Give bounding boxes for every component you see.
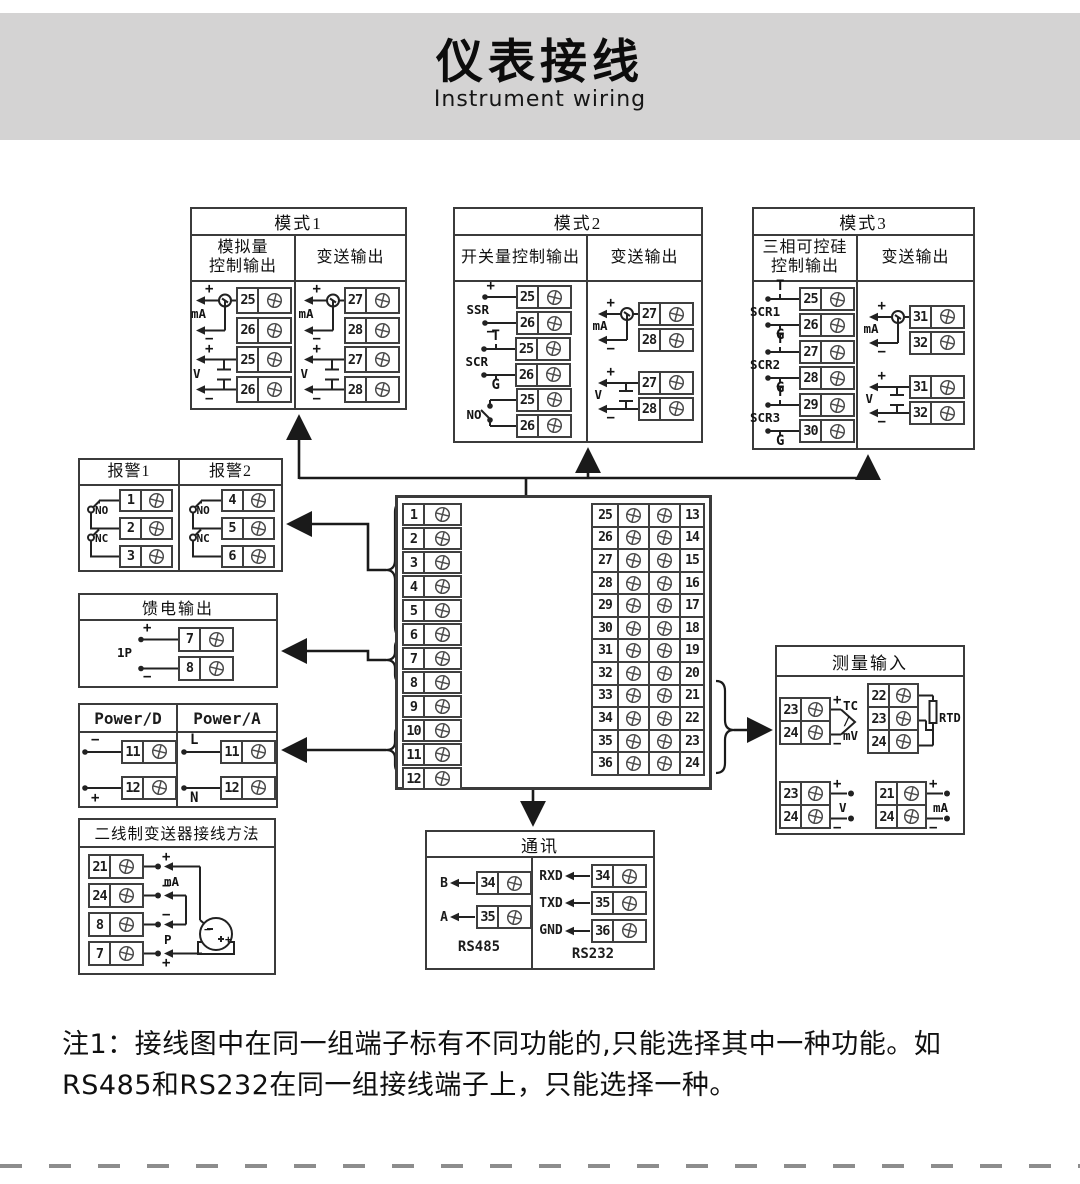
terminal-strip: 1112 — [220, 740, 276, 800]
nc-label: NC — [197, 532, 210, 545]
screw-terminal-icon — [654, 709, 675, 728]
dashed-separator — [0, 1164, 1080, 1168]
terminal-strip: 36 — [591, 919, 647, 943]
polarity-label: + — [313, 281, 321, 297]
central-terminal-block: 123456789101112 251326142715281629173018… — [395, 495, 712, 790]
terminal-screw — [425, 505, 460, 524]
terminal-number: 36 — [593, 753, 617, 774]
alarm-columns: 报警1 NONC123 报警2 NONC456 — [80, 460, 281, 570]
screw-terminal-icon — [937, 378, 958, 397]
terminal-screw — [425, 553, 460, 572]
terminal-number: 26 — [801, 315, 822, 335]
screw-terminal-icon — [654, 641, 675, 660]
terminal-8: 8 — [402, 671, 462, 694]
alarm2-column: 报警2 NONC456 — [180, 460, 281, 570]
terminal-row-27-15: 2715 — [591, 548, 705, 573]
terminal-screw — [822, 421, 853, 441]
terminal-number: 27 — [640, 304, 661, 324]
screw-terminal-icon — [149, 778, 170, 797]
signal-label: 1P — [117, 645, 132, 660]
gate-g-label: G — [776, 433, 784, 449]
terminal-screw — [142, 547, 171, 566]
terminal-strip: 1112 — [121, 740, 177, 800]
terminal-2: 2 — [119, 517, 173, 540]
terminal-25: 25 — [799, 287, 855, 311]
terminal-screw — [648, 528, 679, 549]
screw-terminal-icon — [827, 316, 848, 335]
terminal-strip: 3132 — [909, 375, 965, 425]
comm-columns: B34A35RS485 RXD34TXD35GND36RS232 — [427, 858, 653, 968]
terminal-screw — [243, 742, 274, 762]
terminal-number: 28 — [593, 573, 617, 594]
terminal-number: 19 — [679, 640, 703, 661]
terminal-30: 30 — [799, 419, 855, 443]
terminal-number: 27 — [801, 342, 822, 362]
terminal-screw — [648, 686, 679, 707]
mode3-col2-body: +−mA3132 +−V3132 — [858, 282, 973, 448]
terminal-number: 32 — [593, 663, 617, 684]
screw-terminal-icon — [544, 288, 565, 307]
screw-terminal-icon — [372, 291, 393, 310]
terminal-screw — [617, 618, 648, 639]
terminal-number: 24 — [781, 722, 802, 743]
terminal-strip: 2728 — [344, 346, 400, 403]
screw-terminal-icon — [623, 619, 644, 638]
signal-label: V — [839, 800, 847, 815]
screw-terminal-icon — [666, 305, 687, 324]
terminal-row-31-19: 3119 — [591, 638, 705, 663]
terminal-screw — [648, 663, 679, 684]
terminal-screw — [614, 866, 645, 886]
terminal-number: 34 — [593, 708, 617, 729]
terminal-number: 14 — [679, 528, 703, 549]
screw-terminal-icon — [623, 754, 644, 773]
V-wiring-glyph: +−V — [867, 375, 909, 425]
mode2-transmit-column: 变送输出 +−mA2728 +−V2728 — [588, 236, 701, 441]
terminal-3: 3 — [119, 545, 173, 568]
terminal-screw — [425, 721, 460, 740]
screw-terminal-icon — [827, 422, 848, 441]
screw-terminal-icon — [623, 686, 644, 705]
terminal-strip: 2728 — [799, 340, 855, 390]
terminal-screw — [367, 319, 398, 342]
polarity-label: + — [91, 790, 99, 806]
terminal-number: 32 — [911, 403, 932, 423]
screw-terminal-icon — [654, 551, 675, 570]
terminal-36: 36 — [591, 919, 647, 943]
mA-wiring-glyph: +−mA — [867, 305, 909, 355]
measure-v-group: 2324 + − V — [779, 781, 831, 829]
terminal-strip: 3132 — [909, 305, 965, 355]
terminal-screw — [425, 601, 460, 620]
screw-terminal-icon — [623, 506, 644, 525]
terminal-2: 2 — [402, 527, 462, 550]
signal-label: V — [193, 366, 201, 381]
polarity-label: + — [143, 620, 151, 636]
terminal-number: 24 — [781, 806, 802, 827]
screw-terminal-icon — [893, 732, 914, 751]
terminal-screw — [201, 629, 232, 650]
terminal-screw — [142, 491, 171, 510]
measure-tc-group: 2324 + − TC / mV — [779, 697, 831, 745]
screw-terminal-icon — [623, 574, 644, 593]
screw-terminal-icon — [654, 619, 675, 638]
terminal-number: 25 — [238, 348, 259, 371]
terminal-screw — [890, 731, 917, 752]
terminal-screw — [648, 618, 679, 639]
terminal-11: 11 — [121, 740, 177, 764]
rtd-label: RTD — [939, 711, 961, 726]
terminal-screw — [259, 289, 290, 312]
screw-terminal-icon — [654, 732, 675, 751]
mA-wiring-glyph: +−mA — [302, 287, 344, 344]
terminal-strip: 456 — [221, 489, 275, 568]
comm-row-TXD: TXD35 — [539, 891, 646, 915]
terminal-screw — [932, 333, 963, 353]
terminal-screw — [614, 921, 645, 941]
screw-terminal-icon — [827, 343, 848, 362]
terminal-number: 7 — [180, 629, 201, 650]
terminal-strip: 2526 — [516, 285, 572, 335]
screw-terminal-icon — [248, 547, 269, 566]
polarity-label: − — [878, 344, 886, 360]
terminal-7: 7 — [402, 647, 462, 670]
terminal-number: 28 — [346, 319, 367, 342]
screw-terminal-icon — [654, 686, 675, 705]
terminal-group: NO2526 — [470, 388, 572, 438]
no-label: NO — [95, 504, 108, 517]
terminal-strip: 2526 — [236, 287, 292, 344]
screw-terminal-icon — [544, 416, 565, 435]
screw-terminal-icon — [619, 921, 640, 940]
terminal-screw — [617, 550, 648, 571]
terminal-number: 21 — [877, 783, 898, 804]
polarity-label: − — [833, 736, 841, 752]
screw-terminal-icon — [543, 365, 564, 384]
screw-terminal-icon — [805, 807, 826, 826]
terminal-number: 35 — [593, 893, 614, 913]
terminal-row-36-24: 3624 — [591, 751, 705, 776]
screw-terminal-icon — [654, 528, 675, 547]
polarity-label: + — [607, 295, 615, 311]
terminal-26: 26 — [516, 414, 572, 438]
terminal-number: 25 — [518, 287, 539, 307]
scr-wiring-glyph: TGSCR2 — [755, 340, 799, 390]
page-header: 仪表接线 Instrument wiring — [0, 13, 1080, 140]
signal-label: RXD — [539, 869, 562, 884]
no-wiring-glyph: NO — [470, 388, 516, 438]
terminal-screw — [890, 708, 917, 729]
terminal-screw — [425, 649, 460, 668]
terminal-6: 6 — [402, 623, 462, 646]
terminal-11: 11 — [402, 743, 462, 766]
terminal-number: 23 — [679, 731, 703, 752]
V-wiring-glyph: +−V — [302, 346, 344, 403]
power-wiring-glyph: LN — [178, 740, 220, 800]
screw-terminal-icon — [623, 732, 644, 751]
terminal-strip: 2728 — [638, 302, 694, 352]
terminal-23: 23 — [779, 697, 831, 722]
terminal-number: 29 — [801, 395, 822, 415]
measure-rtd-group: 222324 RTD — [867, 683, 919, 754]
transmitter-minus: − — [204, 922, 211, 937]
polarity-label: + — [878, 368, 886, 384]
terminal-row-32-20: 3220 — [591, 661, 705, 686]
screw-terminal-icon — [432, 745, 453, 764]
terminal-number: 13 — [679, 505, 703, 526]
screw-terminal-icon — [544, 390, 565, 409]
signal-label: V — [301, 366, 309, 381]
terminal-screw — [617, 708, 648, 729]
terminal-strip: 123 — [119, 489, 173, 568]
mode2-columns: 开关量控制输出 +−SSR2526 TGSCR2526 NO2526 变送输出 … — [455, 236, 701, 441]
signal-label: mA — [864, 321, 879, 336]
terminals-25-36-13-24: 2513261427152816291730183119322033213422… — [591, 503, 705, 776]
terminal-screw — [425, 529, 460, 548]
terminal-4: 4 — [402, 575, 462, 598]
screw-terminal-icon — [248, 742, 269, 761]
screw-terminal-icon — [623, 551, 644, 570]
terminal-number: 12 — [404, 769, 425, 788]
terminal-number: 8 — [180, 658, 201, 679]
terminal-number: 26 — [238, 378, 259, 401]
terminal-number: 17 — [679, 595, 703, 616]
polarity-label: + — [607, 364, 615, 380]
comm-box: 通讯 B34A35RS485 RXD34TXD35GND36RS232 — [425, 830, 655, 970]
terminal-31: 31 — [909, 375, 965, 399]
terminal-28: 28 — [638, 328, 694, 352]
terminal-screw — [648, 708, 679, 729]
comm-standard-label: RS232 — [572, 946, 614, 962]
screw-terminal-icon — [805, 723, 826, 742]
feed-wiring-glyph: +−1P — [122, 627, 178, 681]
terminal-screw — [898, 783, 925, 804]
terminal-number: 29 — [593, 595, 617, 616]
terminal-screw — [648, 640, 679, 661]
polarity-label: + — [313, 341, 321, 357]
terminal-26: 26 — [515, 363, 571, 387]
terminal-screw — [648, 505, 679, 526]
rtd-strip: 222324 — [867, 683, 919, 754]
screw-terminal-icon — [623, 709, 644, 728]
terminal-32: 32 — [909, 331, 965, 355]
wiring-diagram: 模式1 模拟量 控制输出 +−mA2526 +−V2526 变送输出 +−mA2… — [0, 140, 1080, 1020]
polarity-label: N — [190, 790, 198, 806]
terminal-7: 7 — [178, 627, 234, 652]
mA-wiring-glyph: +−mA — [596, 302, 638, 352]
signal-label: TXD — [539, 896, 562, 911]
wire-arrow-left-icon — [449, 905, 475, 929]
alarm1-header: 报警1 — [80, 460, 178, 486]
terminal-screw — [144, 742, 175, 762]
polarity-label: − — [833, 820, 841, 836]
screw-terminal-icon — [805, 700, 826, 719]
terminal-number: 3 — [404, 553, 425, 572]
tc-mv-label: TC / mV — [843, 698, 858, 743]
terminal-group: TGSCR2526 — [471, 337, 571, 387]
power-wiring-glyph: −+ — [79, 740, 121, 800]
terminal-number: 21 — [679, 686, 703, 707]
signal-label: GND — [539, 923, 562, 938]
terminal-28: 28 — [344, 376, 400, 403]
terminal-strip: 2526 — [515, 337, 571, 387]
terminal-group: TGSCR22728 — [755, 340, 855, 390]
terminal-number: 6 — [223, 547, 244, 566]
terminal-screw — [661, 399, 692, 419]
terminal-screw — [890, 685, 917, 706]
screw-terminal-icon — [937, 404, 958, 423]
terminal-group: +−1P78 — [122, 627, 234, 681]
alarm1-body: NONC123 — [80, 486, 178, 570]
terminal-screw — [802, 806, 829, 827]
terminal-screw — [617, 505, 648, 526]
screw-terminal-icon — [432, 649, 453, 668]
terminal-group: +−V2728 — [596, 371, 694, 421]
scr-wiring-glyph: TGSCR3 — [755, 393, 799, 443]
terminal-28: 28 — [638, 397, 694, 421]
power-a-body: LN1112 — [178, 733, 276, 806]
polarity-label: − — [607, 341, 615, 357]
terminal-5: 5 — [221, 517, 275, 540]
terminal-screw — [802, 699, 829, 720]
terminal-number: 24 — [869, 731, 890, 752]
mode3-transmit-column: 变送输出 +−mA3132 +−V3132 — [858, 236, 973, 448]
terminal-number: 23 — [869, 708, 890, 729]
terminal-number: 26 — [517, 365, 538, 385]
nc-label: NC — [95, 532, 108, 545]
terminal-row-29-17: 2917 — [591, 593, 705, 618]
screw-terminal-icon — [937, 307, 958, 326]
mode3-box: 模式3 三相可控硅 控制输出 TGSCR12526 TGSCR22728 TGS… — [752, 207, 975, 450]
comm-row-A: A35 — [426, 905, 532, 929]
terminal-25: 25 — [516, 285, 572, 309]
terminal-26: 26 — [236, 317, 292, 344]
gate-t-label: T — [492, 328, 500, 344]
terminal-25: 25 — [516, 388, 572, 412]
polarity-label: + — [205, 281, 213, 297]
mode1-title: 模式1 — [192, 209, 405, 236]
screw-terminal-icon — [805, 784, 826, 803]
terminal-strip: 2526 — [516, 388, 572, 438]
screw-terminal-icon — [146, 519, 167, 538]
terminal-10: 10 — [402, 719, 462, 742]
mode3-col1-header: 三相可控硅 控制输出 — [754, 236, 856, 282]
mode1-control-column: 模拟量 控制输出 +−mA2526 +−V2526 — [192, 236, 296, 408]
terminal-number: 27 — [346, 289, 367, 312]
comm-row-B: B34 — [426, 871, 532, 895]
terminal-number: 30 — [593, 618, 617, 639]
terminal-number: 25 — [517, 339, 538, 359]
screw-terminal-icon — [893, 686, 914, 705]
mode2-control-column: 开关量控制输出 +−SSR2526 TGSCR2526 NO2526 — [455, 236, 588, 441]
terminal-number: 5 — [223, 519, 244, 538]
terminal-34: 34 — [476, 871, 532, 895]
gate-t-label: T — [776, 384, 784, 400]
feed-body: +−1P78 — [80, 621, 276, 686]
terminal-number: 26 — [238, 319, 259, 342]
terminal-number: 23 — [781, 699, 802, 720]
terminal-27: 27 — [638, 371, 694, 395]
terminal-screw — [539, 313, 570, 333]
terminal-9: 9 — [402, 695, 462, 718]
terminal-screw — [648, 753, 679, 774]
terminal-screw — [539, 390, 570, 410]
terminal-number: 5 — [404, 601, 425, 620]
terminal-number: 24 — [877, 806, 898, 827]
terminal-strip: 2728 — [638, 371, 694, 421]
terminal-26: 26 — [236, 376, 292, 403]
screw-terminal-icon — [264, 350, 285, 369]
terminal-27: 27 — [799, 340, 855, 364]
feed-output-box: 馈电输出 +−1P78 — [78, 593, 278, 688]
terminal-screw — [539, 287, 570, 307]
terminal-27: 27 — [638, 302, 694, 326]
terminal-number: 4 — [223, 491, 244, 510]
terminal-27: 27 — [344, 287, 400, 314]
terminal-number: 28 — [640, 399, 661, 419]
alarm2-header: 报警2 — [180, 460, 281, 486]
rs232-column: RXD34TXD35GND36RS232 — [533, 858, 653, 968]
terminal-number: 31 — [911, 307, 932, 327]
mode2-title: 模式2 — [455, 209, 701, 236]
terminal-number: 34 — [478, 873, 499, 893]
terminal-number: 27 — [593, 550, 617, 571]
polarity-label: + — [205, 341, 213, 357]
terminal-number: 10 — [404, 721, 425, 740]
tc-strip: 2324 — [779, 697, 831, 745]
signal-label: V — [595, 387, 603, 402]
screw-terminal-icon — [893, 709, 914, 728]
terminal-number: 34 — [593, 866, 614, 886]
terminal-number: 33 — [593, 686, 617, 707]
mode2-col1-header: 开关量控制输出 — [455, 236, 586, 282]
terminal-31: 31 — [909, 305, 965, 329]
polarity-label: − — [205, 391, 213, 407]
screw-terminal-icon — [432, 721, 453, 740]
terminal-screw — [617, 663, 648, 684]
screw-terminal-icon — [372, 350, 393, 369]
screw-terminal-icon — [372, 380, 393, 399]
terminal-screw — [932, 377, 963, 397]
terminal-1: 1 — [402, 503, 462, 526]
screw-terminal-icon — [504, 908, 525, 927]
terminal-screw — [932, 307, 963, 327]
terminal-number: 1 — [121, 491, 142, 510]
terminal-number: 26 — [518, 416, 539, 436]
polarity-label: L — [190, 732, 198, 748]
terminal-number: 22 — [679, 708, 703, 729]
screw-terminal-icon — [264, 321, 285, 340]
terminal-screw — [539, 416, 570, 436]
V-wiring-glyph: +−V — [596, 371, 638, 421]
terminal-29: 29 — [799, 393, 855, 417]
screw-terminal-icon — [504, 874, 525, 893]
terminal-screw — [802, 783, 829, 804]
terminal-number: 25 — [518, 390, 539, 410]
terminal-screw — [425, 697, 460, 716]
polarity-label: − — [91, 732, 99, 748]
screw-terminal-icon — [619, 894, 640, 913]
terminal-number: 2 — [404, 529, 425, 548]
terminal-screw — [538, 339, 569, 359]
terminal-number: 2 — [121, 519, 142, 538]
alarm-box: 报警1 NONC123 报警2 NONC456 — [78, 458, 283, 572]
terminal-number: 25 — [238, 289, 259, 312]
terminal-row-28-16: 2816 — [591, 571, 705, 596]
ma-strip: 2124 — [875, 781, 927, 829]
terminal-number: 12 — [123, 778, 144, 798]
alarm-wiring-glyph: NONC — [187, 489, 221, 568]
